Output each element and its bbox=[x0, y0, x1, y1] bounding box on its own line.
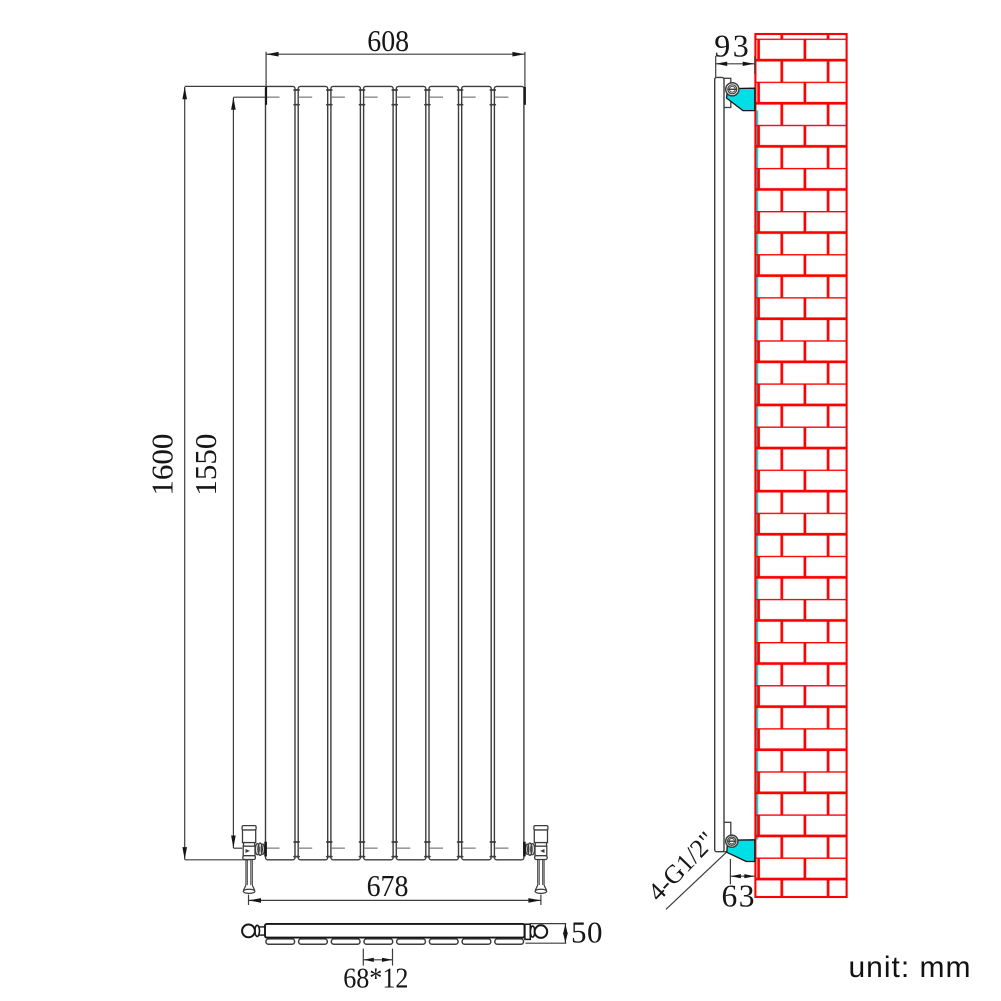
svg-text:50: 50 bbox=[571, 915, 603, 950]
svg-text:68*12: 68*12 bbox=[343, 961, 408, 994]
svg-text:1550: 1550 bbox=[188, 434, 223, 496]
svg-text:63: 63 bbox=[722, 879, 757, 914]
svg-text:1600: 1600 bbox=[145, 434, 180, 496]
svg-text:unit: mm: unit: mm bbox=[849, 951, 972, 984]
svg-text:93: 93 bbox=[714, 28, 751, 64]
svg-text:608: 608 bbox=[367, 25, 409, 59]
svg-text:678: 678 bbox=[367, 870, 409, 904]
